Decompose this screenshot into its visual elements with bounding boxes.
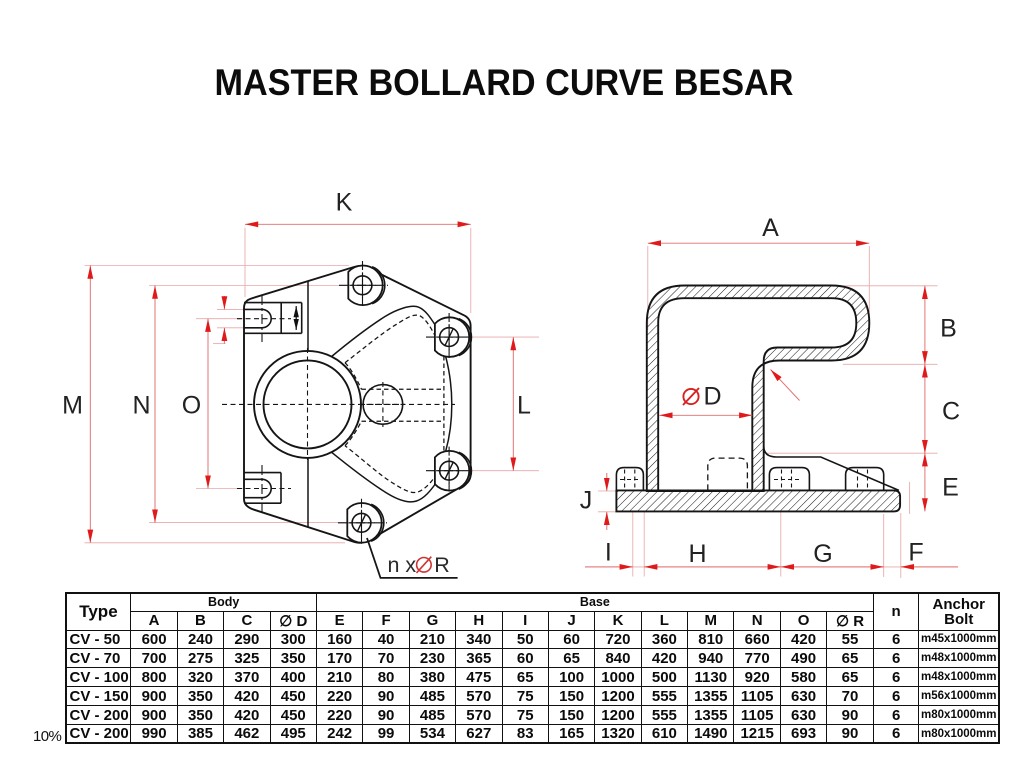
svg-text:G: G <box>813 540 832 568</box>
svg-text:F: F <box>908 539 923 567</box>
svg-text:C: C <box>942 398 960 426</box>
svg-text:A: A <box>762 214 779 242</box>
svg-text:O: O <box>182 392 201 420</box>
svg-text:D: D <box>704 383 722 411</box>
svg-text:H: H <box>688 540 706 568</box>
svg-text:M: M <box>62 392 83 420</box>
svg-text:K: K <box>336 189 353 217</box>
svg-text:N: N <box>132 392 150 420</box>
svg-text:L: L <box>517 392 531 420</box>
svg-text:R: R <box>434 553 450 577</box>
svg-text:I: I <box>605 539 612 567</box>
svg-text:E: E <box>942 474 959 502</box>
svg-text:J: J <box>580 487 593 515</box>
svg-text:n x: n x <box>388 553 417 577</box>
svg-text:B: B <box>940 315 957 343</box>
